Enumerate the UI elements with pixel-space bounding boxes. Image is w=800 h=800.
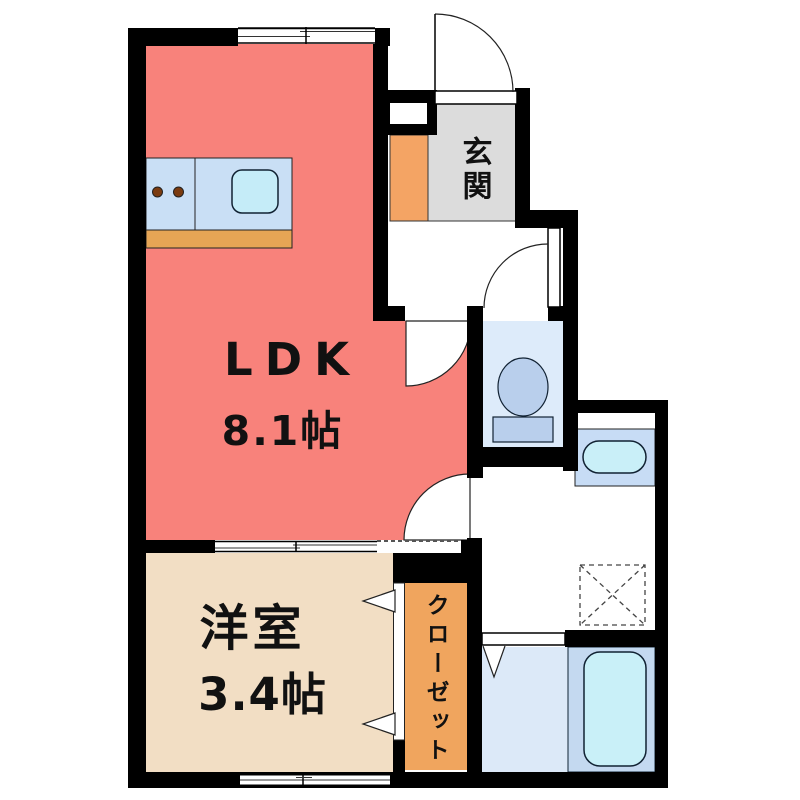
kitchen-cabinet bbox=[146, 230, 292, 248]
wall-closet-left-lower bbox=[393, 740, 405, 788]
floor-plan-drawing bbox=[0, 0, 800, 800]
closet-label: クローゼット bbox=[423, 585, 447, 775]
vanity-basin bbox=[583, 441, 646, 473]
western-room-label: 洋室 bbox=[150, 603, 355, 654]
wall-top-left bbox=[128, 28, 238, 46]
wall-left-outer bbox=[128, 28, 146, 788]
wall-entrance-left bbox=[373, 46, 388, 308]
toilet-tank bbox=[493, 417, 553, 442]
ldk-floor bbox=[146, 43, 373, 540]
washing-machine-space bbox=[580, 565, 645, 625]
bathtub bbox=[584, 652, 646, 766]
wall-western-top bbox=[146, 540, 215, 553]
ldk-room-label: LDK bbox=[205, 336, 380, 383]
wall-right-outer bbox=[655, 400, 668, 788]
kitchen-sink bbox=[232, 170, 278, 213]
wall-washroom-top bbox=[573, 400, 668, 413]
floor-plan: LDK 8.1帖 洋室 3.4帖 玄関 クローゼット bbox=[0, 0, 800, 800]
stove-knob-icon bbox=[153, 187, 163, 197]
western-room-size: 3.4帖 bbox=[150, 671, 375, 718]
entrance-label: 玄関 bbox=[458, 127, 490, 213]
entrance-step bbox=[390, 135, 428, 221]
toilet-door-panel bbox=[548, 228, 560, 307]
entrance-side-window bbox=[390, 103, 427, 124]
wall-step-horizontal bbox=[515, 210, 578, 228]
entrance-threshold bbox=[435, 91, 517, 104]
entrance-door-swing-arc bbox=[435, 14, 513, 92]
stove-knob-icon bbox=[174, 187, 184, 197]
wall-entrance-right bbox=[515, 88, 530, 228]
wall-closet-right bbox=[467, 538, 482, 788]
bathroom-folding-door bbox=[482, 633, 565, 645]
western-room-floor bbox=[146, 553, 393, 772]
wall-hall-stub-left bbox=[373, 306, 405, 321]
wall-top-corner bbox=[373, 28, 390, 46]
wall-toilet-bottom bbox=[467, 447, 565, 467]
toilet-bowl bbox=[498, 358, 548, 416]
wall-bathroom-top bbox=[565, 630, 668, 647]
wall-hall-stub-right bbox=[548, 306, 578, 321]
ldk-room-size: 8.1帖 bbox=[180, 410, 385, 453]
wall-right-inner bbox=[563, 228, 578, 471]
toilet-door-swing-arc bbox=[484, 244, 548, 308]
